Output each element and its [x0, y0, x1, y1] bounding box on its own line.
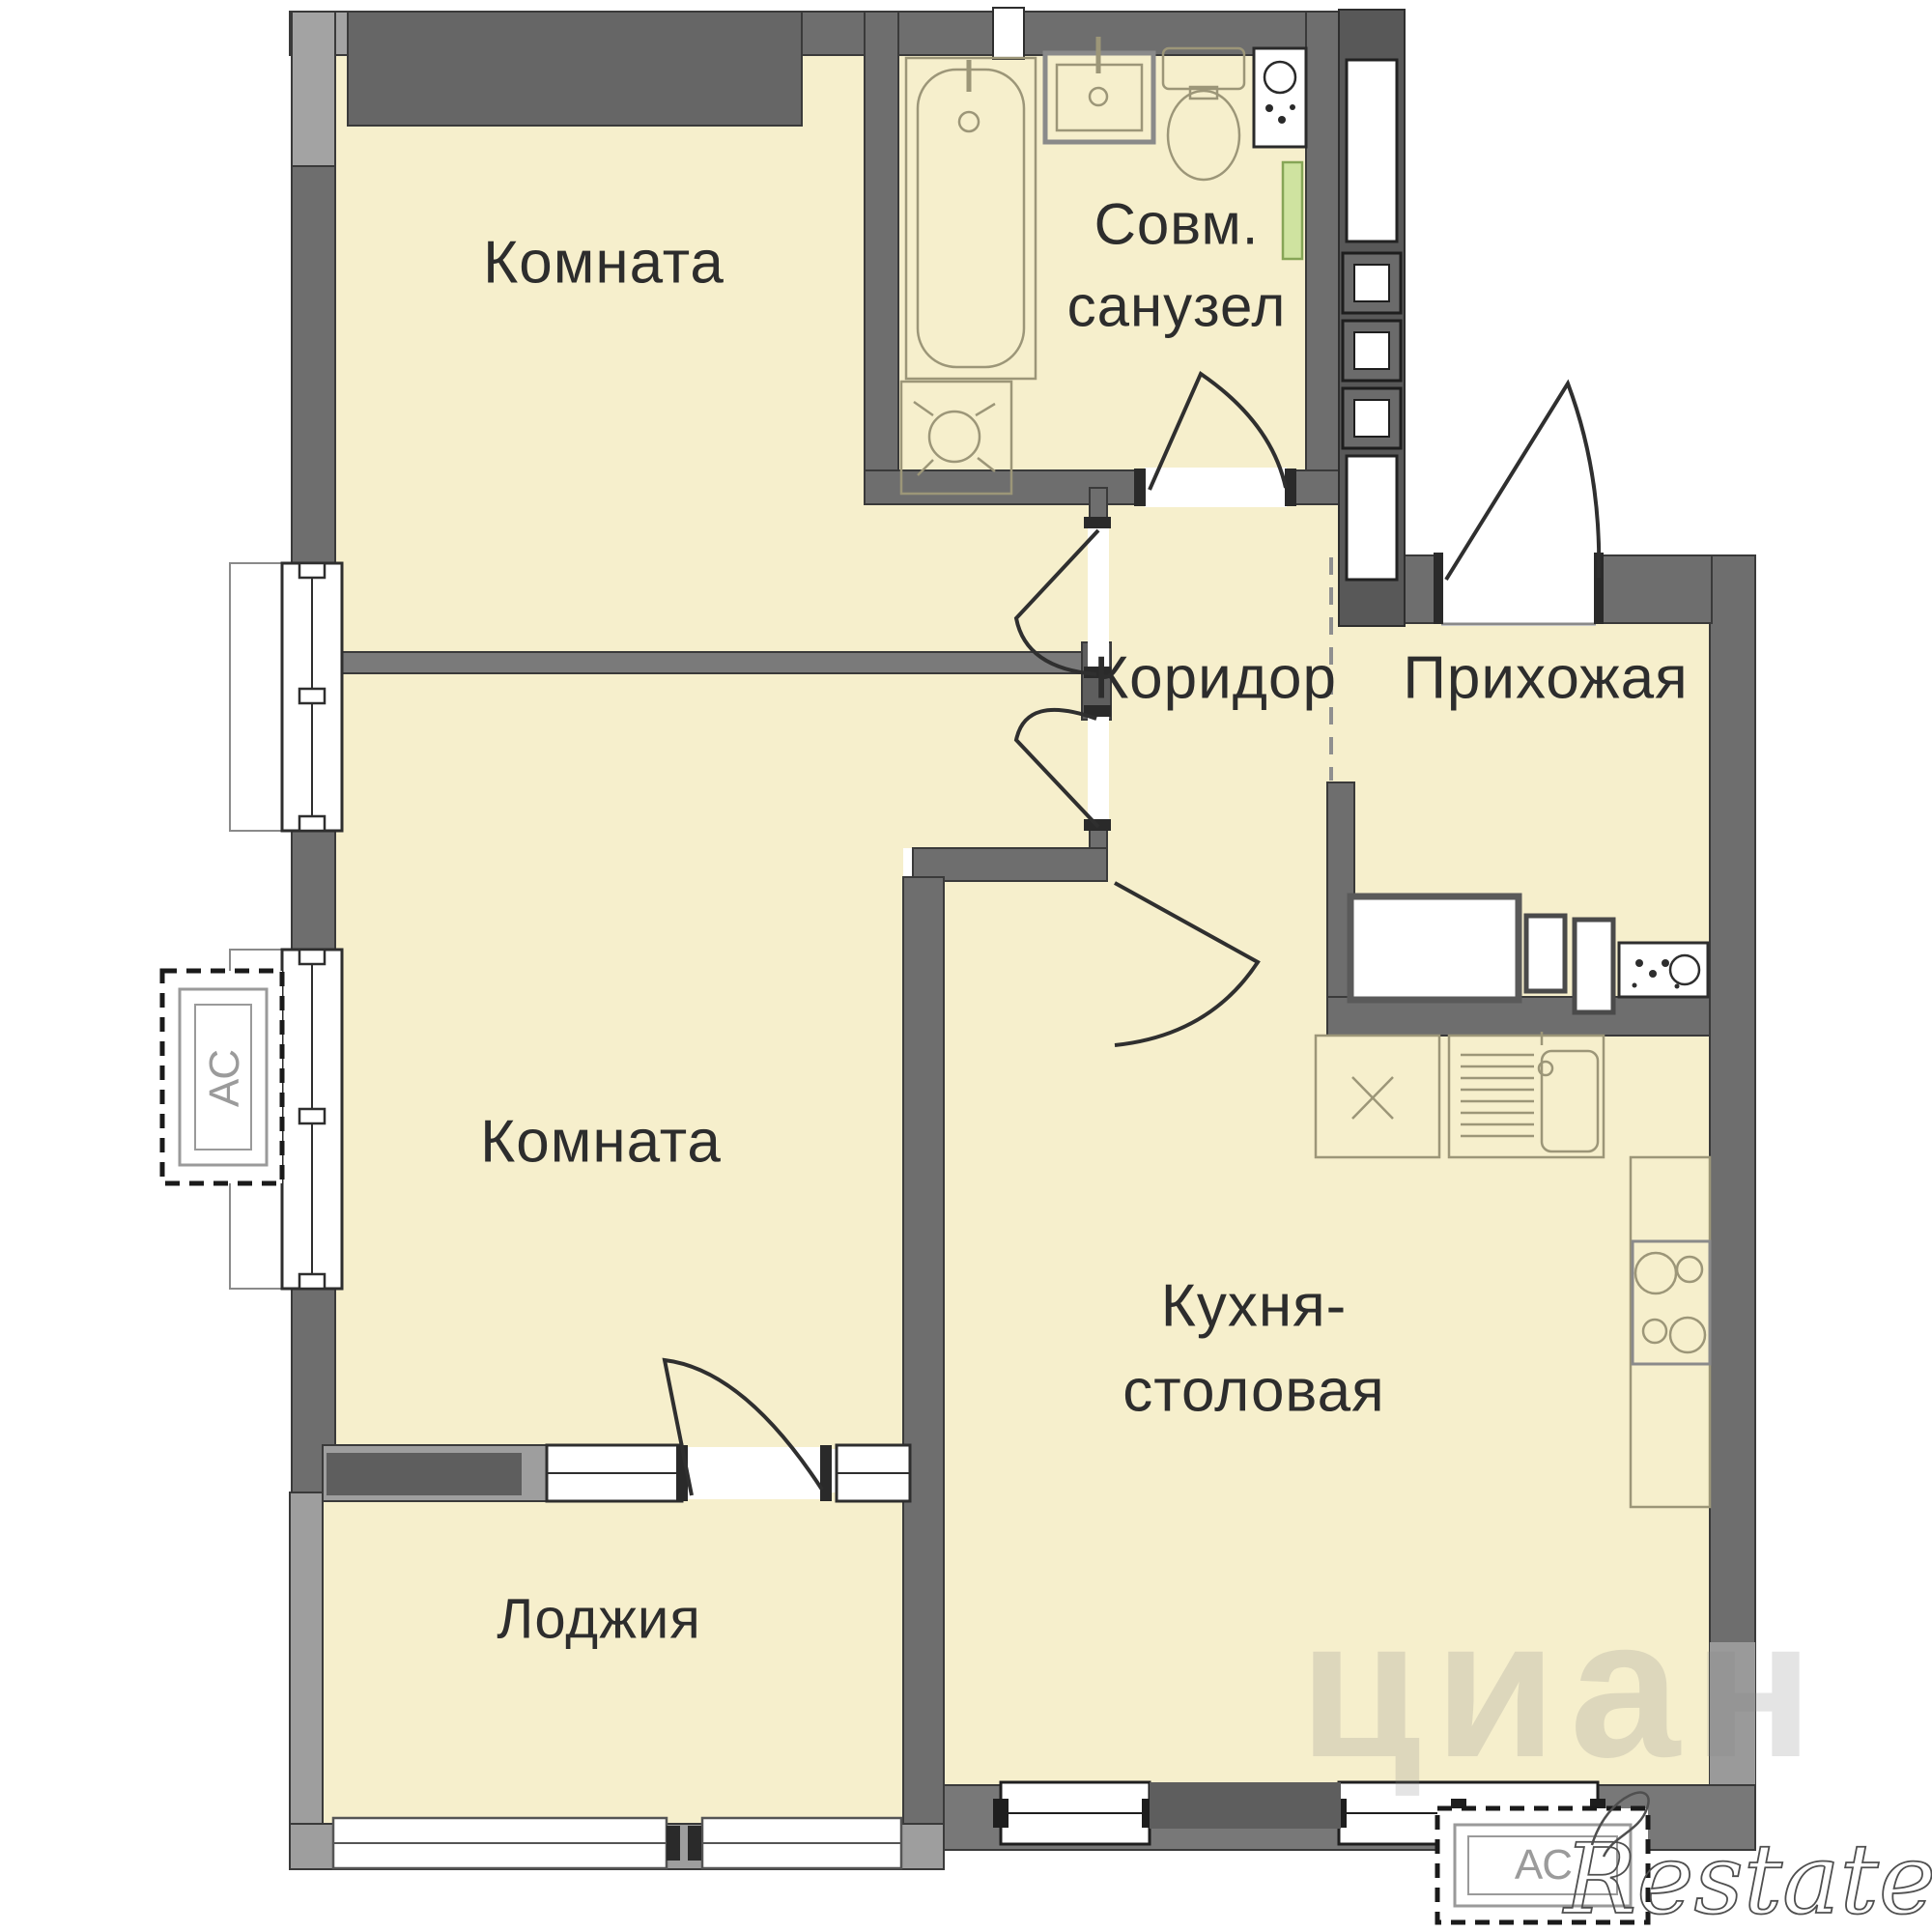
cian-watermark: циан — [1299, 1575, 1827, 1803]
wall-kitchen-left — [903, 877, 944, 1866]
wall-bathroom-right — [1306, 12, 1343, 504]
wall-loggia-left — [290, 1492, 323, 1869]
vent-shaft — [1339, 10, 1405, 626]
label-corridor: Коридор — [1094, 644, 1337, 713]
wall-top-pylon — [348, 12, 802, 126]
bath-sink — [1045, 37, 1153, 142]
label-ac-bottom: АС — [1515, 1841, 1573, 1889]
room-top-floor — [335, 55, 865, 654]
label-room-top: Комната — [483, 229, 724, 298]
wall-bathroom-left — [865, 12, 898, 504]
label-bathroom-1: Совм. — [1094, 191, 1260, 258]
label-ac-left: АС — [201, 1049, 249, 1107]
window-left-1 — [230, 563, 342, 831]
floor-plan: Restate циан Комната Совм. санузел Корид… — [0, 0, 1932, 1932]
door-arc-entrance — [1446, 384, 1599, 580]
wardrobe — [1350, 896, 1519, 1000]
window-loggia-bottom — [333, 1818, 901, 1868]
green-strip — [1283, 162, 1302, 259]
vent-box — [1347, 60, 1397, 241]
loggia-floor — [323, 1492, 903, 1826]
label-bathroom-2: санузел — [1067, 273, 1287, 340]
label-hallway: Прихожая — [1403, 644, 1688, 713]
stove — [1633, 1241, 1710, 1364]
restate-watermark-text: Restate — [1562, 1823, 1932, 1932]
cabinet-small-1 — [1526, 916, 1565, 991]
window-kitchen-1 — [993, 1782, 1157, 1844]
wall-room-divider — [333, 652, 1107, 673]
appliance-panel — [1619, 943, 1708, 997]
label-room-bottom: Комната — [480, 1108, 722, 1177]
cabinet-small-2 — [1575, 920, 1613, 1012]
wall-gap — [993, 8, 1024, 59]
label-kitchen-2: столовая — [1122, 1357, 1384, 1426]
radiator-room-bottom — [327, 1453, 522, 1495]
label-loggia: Лоджия — [497, 1587, 701, 1652]
label-kitchen-1: Кухня- — [1161, 1272, 1348, 1341]
water-heater — [1254, 48, 1306, 147]
